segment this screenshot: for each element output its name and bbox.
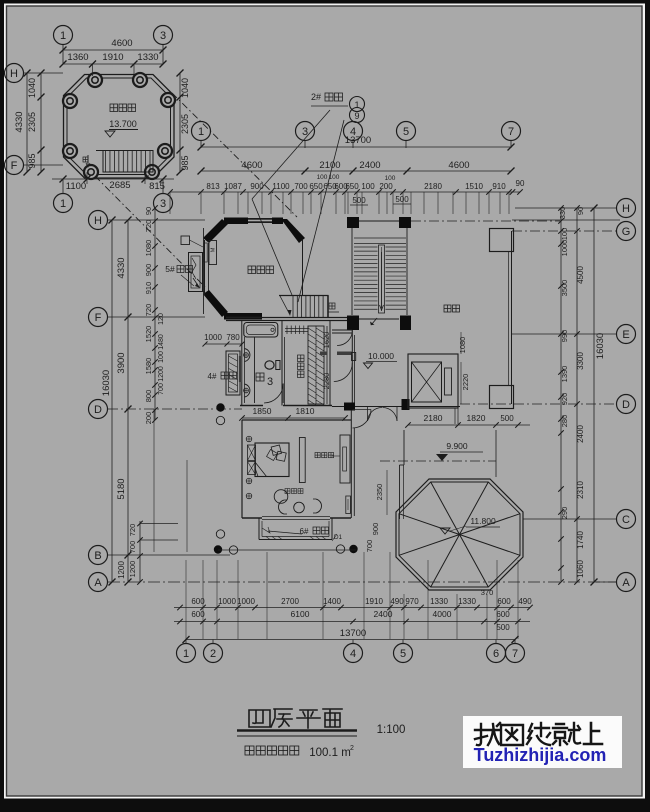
- svg-text:1910: 1910: [365, 597, 383, 606]
- svg-text:985: 985: [180, 155, 190, 170]
- svg-text:5: 5: [400, 648, 406, 660]
- svg-text:2100: 2100: [319, 160, 340, 171]
- svg-text:1000: 1000: [218, 597, 236, 606]
- svg-text:910: 910: [144, 282, 153, 295]
- svg-text:815: 815: [149, 181, 165, 192]
- svg-text:6#: 6#: [300, 527, 309, 536]
- svg-text:910: 910: [492, 182, 506, 191]
- svg-text:2310: 2310: [576, 481, 585, 499]
- svg-text:100: 100: [329, 174, 340, 181]
- svg-text:4600: 4600: [241, 160, 262, 171]
- svg-text:H: H: [10, 68, 18, 80]
- svg-text:650: 650: [345, 182, 359, 191]
- svg-text:2305: 2305: [27, 112, 37, 132]
- svg-text:600: 600: [497, 597, 511, 606]
- svg-text:3300: 3300: [576, 352, 585, 370]
- svg-text:1200: 1200: [117, 561, 126, 579]
- svg-text:3: 3: [160, 30, 166, 42]
- svg-text:1:100: 1:100: [377, 724, 406, 736]
- svg-text:720: 720: [128, 524, 137, 537]
- svg-text:990: 990: [560, 330, 569, 343]
- svg-text:1200: 1200: [158, 366, 165, 382]
- svg-text:920: 920: [560, 393, 569, 406]
- svg-text:1360: 1360: [67, 52, 88, 63]
- svg-text:280: 280: [560, 415, 569, 428]
- svg-text:6100: 6100: [291, 609, 310, 619]
- svg-text:4#: 4#: [208, 372, 217, 381]
- svg-text:13.700: 13.700: [109, 119, 137, 129]
- svg-text:650: 650: [309, 182, 323, 191]
- svg-text:G: G: [622, 226, 631, 238]
- svg-text:800: 800: [144, 390, 153, 403]
- svg-text:2700: 2700: [281, 597, 299, 606]
- svg-text:1200: 1200: [128, 561, 137, 578]
- svg-text:13700: 13700: [340, 628, 366, 639]
- svg-text:330: 330: [558, 207, 567, 220]
- svg-text:1580: 1580: [144, 358, 153, 375]
- svg-text:1480: 1480: [158, 334, 165, 350]
- svg-text:100: 100: [560, 228, 569, 241]
- svg-text:2220: 2220: [461, 374, 470, 391]
- svg-text:90: 90: [144, 207, 153, 215]
- svg-text:700: 700: [128, 541, 137, 554]
- svg-text:900: 900: [144, 264, 153, 277]
- svg-text:4600: 4600: [111, 38, 132, 49]
- svg-text:1390: 1390: [560, 366, 569, 383]
- svg-text:D: D: [622, 399, 630, 411]
- svg-text:2280: 2280: [322, 373, 331, 390]
- svg-text:C: C: [622, 514, 630, 526]
- svg-text:D: D: [94, 404, 102, 416]
- svg-text:100: 100: [317, 174, 328, 181]
- svg-text:600: 600: [496, 610, 510, 619]
- svg-text:700: 700: [365, 540, 374, 553]
- svg-text:E: E: [622, 329, 629, 341]
- svg-text:5: 5: [403, 126, 409, 138]
- svg-text:1510: 1510: [465, 182, 483, 191]
- svg-text:1910: 1910: [102, 52, 123, 63]
- svg-text:F: F: [95, 312, 102, 324]
- svg-text:500: 500: [496, 623, 510, 632]
- svg-text:16030: 16030: [101, 370, 112, 396]
- svg-text:2180: 2180: [424, 413, 443, 423]
- svg-text:2305: 2305: [180, 114, 190, 134]
- svg-text:H: H: [94, 215, 102, 227]
- svg-text:3: 3: [160, 198, 166, 210]
- svg-text:2400: 2400: [576, 425, 585, 443]
- svg-text:200: 200: [379, 182, 393, 191]
- svg-text:1: 1: [354, 100, 359, 110]
- svg-text:1810: 1810: [296, 406, 315, 416]
- svg-text:2: 2: [350, 745, 354, 752]
- svg-text:900: 900: [371, 523, 380, 536]
- svg-text:3900: 3900: [116, 352, 127, 373]
- svg-text:A: A: [94, 577, 102, 589]
- svg-text:5#: 5#: [165, 264, 175, 274]
- svg-text:100: 100: [158, 351, 165, 363]
- svg-text:700: 700: [294, 182, 308, 191]
- svg-text:F: F: [11, 160, 18, 172]
- svg-text:1080: 1080: [144, 240, 153, 257]
- svg-text:90: 90: [516, 179, 525, 188]
- svg-text:5180: 5180: [116, 478, 127, 499]
- svg-text:500: 500: [395, 195, 409, 204]
- svg-text:780: 780: [226, 333, 240, 342]
- svg-text:2: 2: [210, 648, 216, 660]
- svg-text:100: 100: [361, 182, 375, 191]
- svg-text:720: 720: [144, 304, 153, 317]
- svg-text:4500: 4500: [576, 266, 585, 284]
- svg-text:1100: 1100: [66, 181, 86, 192]
- svg-text:4600: 4600: [448, 160, 469, 171]
- svg-text:1520: 1520: [144, 326, 153, 343]
- svg-text:9.900: 9.900: [446, 441, 468, 451]
- svg-text:813: 813: [206, 182, 220, 191]
- svg-text:2350: 2350: [375, 484, 384, 501]
- svg-text:100: 100: [385, 175, 396, 182]
- svg-text:1000: 1000: [237, 597, 255, 606]
- svg-text:1000: 1000: [204, 333, 222, 342]
- svg-text:D1: D1: [334, 534, 343, 541]
- svg-text:985: 985: [27, 153, 37, 168]
- svg-text:970: 970: [405, 597, 419, 606]
- svg-text:4000: 4000: [433, 609, 452, 619]
- svg-text:1330: 1330: [137, 52, 158, 63]
- svg-text:7: 7: [508, 126, 514, 138]
- svg-text:90: 90: [576, 207, 585, 215]
- svg-text:500: 500: [500, 414, 514, 423]
- svg-text:9: 9: [354, 111, 359, 121]
- svg-text:1087: 1087: [224, 182, 242, 191]
- svg-text:4: 4: [350, 648, 356, 660]
- svg-text:100.1 m: 100.1 m: [309, 747, 351, 759]
- svg-text:1820: 1820: [467, 413, 486, 423]
- svg-text:490: 490: [518, 597, 532, 606]
- svg-text:490: 490: [390, 597, 404, 606]
- svg-text:500: 500: [352, 196, 366, 205]
- svg-text:1330: 1330: [458, 597, 476, 606]
- svg-text:1850: 1850: [253, 406, 272, 416]
- svg-text:120: 120: [158, 313, 165, 325]
- svg-text:2685: 2685: [109, 180, 130, 191]
- svg-text:Tuzhizhijia.com: Tuzhizhijia.com: [474, 745, 607, 765]
- svg-text:700: 700: [158, 383, 165, 395]
- svg-text:4330: 4330: [14, 111, 25, 132]
- svg-text:720: 720: [144, 220, 153, 233]
- svg-text:1040: 1040: [27, 78, 37, 98]
- svg-text:1000: 1000: [560, 240, 569, 257]
- svg-text:A: A: [622, 577, 630, 589]
- svg-text:4330: 4330: [116, 257, 127, 278]
- svg-text:1040: 1040: [180, 78, 190, 98]
- svg-text:H: H: [622, 203, 630, 215]
- svg-text:1: 1: [198, 126, 204, 138]
- svg-text:1620: 1620: [322, 332, 331, 349]
- svg-text:1: 1: [183, 648, 189, 660]
- svg-text:1330: 1330: [430, 597, 448, 606]
- svg-text:1080: 1080: [458, 337, 467, 354]
- svg-text:B: B: [94, 550, 101, 562]
- svg-text:7: 7: [512, 648, 518, 660]
- svg-text:M: M: [211, 247, 217, 252]
- svg-text:1740: 1740: [576, 531, 585, 549]
- svg-text:6: 6: [493, 648, 499, 660]
- svg-text:3500: 3500: [560, 280, 569, 297]
- svg-text:1100: 1100: [272, 182, 290, 191]
- svg-text:16030: 16030: [595, 333, 606, 359]
- svg-text:13700: 13700: [345, 135, 371, 146]
- svg-text:11.800: 11.800: [470, 516, 496, 526]
- svg-text:1: 1: [60, 30, 66, 42]
- svg-text:290: 290: [560, 507, 569, 520]
- svg-text:1060: 1060: [576, 560, 585, 578]
- svg-text:2180: 2180: [424, 182, 442, 191]
- svg-text:1400: 1400: [323, 597, 341, 606]
- svg-text:3: 3: [267, 376, 273, 388]
- svg-text:200: 200: [144, 412, 153, 425]
- svg-text:900: 900: [250, 182, 264, 191]
- svg-text:1: 1: [60, 198, 66, 210]
- svg-text:2400: 2400: [359, 160, 380, 171]
- svg-text:2#: 2#: [311, 92, 321, 102]
- svg-text:10.000: 10.000: [368, 351, 394, 361]
